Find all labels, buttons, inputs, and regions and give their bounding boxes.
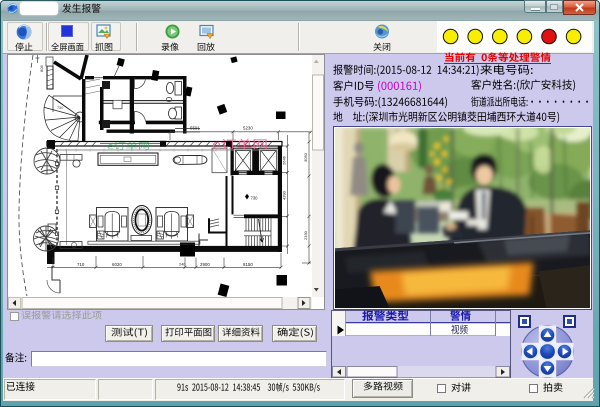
- svg-text:808: 808: [39, 65, 44, 72]
- svg-text:2646: 2646: [282, 155, 287, 165]
- svg-text:730: 730: [251, 196, 259, 201]
- svg-text:5230: 5230: [243, 126, 253, 131]
- svg-text:3050: 3050: [303, 152, 308, 162]
- svg-text:750: 750: [57, 106, 63, 110]
- svg-text:240: 240: [179, 263, 185, 267]
- svg-text:6020: 6020: [112, 262, 122, 267]
- svg-text:2330: 2330: [303, 230, 308, 240]
- svg-text:8150: 8150: [243, 262, 253, 267]
- svg-text:4390: 4390: [282, 190, 287, 200]
- svg-text:6501: 6501: [190, 126, 200, 131]
- svg-text:2900: 2900: [200, 262, 210, 267]
- svg-text:710: 710: [77, 262, 85, 267]
